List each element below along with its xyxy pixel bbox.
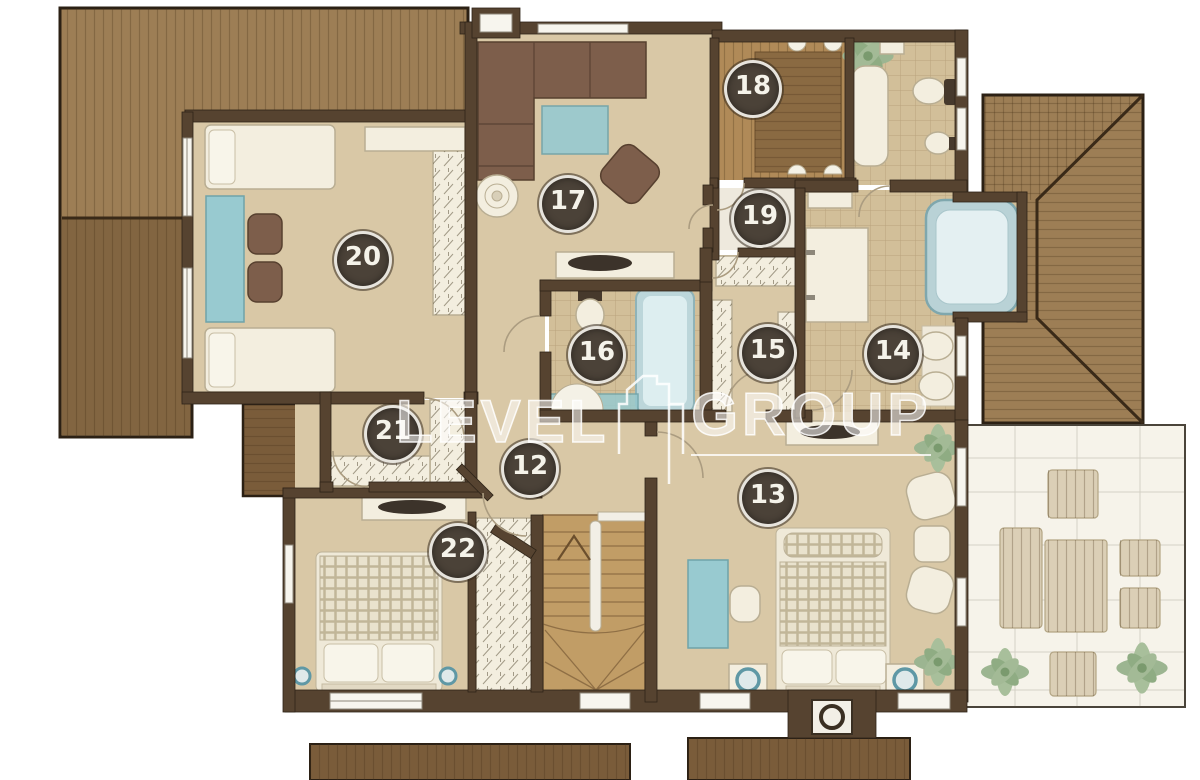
room-badge-18: 18 [724,60,782,118]
room-badge-12: 12 [501,440,559,498]
pillow [209,130,235,184]
chair [248,262,282,302]
tv [378,500,446,514]
bidet [925,132,951,154]
floor-plan-canvas: 12 13 14 15 16 17 18 19 20 21 22 LEVEL G… [0,0,1200,780]
staircase[interactable] [543,512,646,692]
shelf [880,42,904,54]
room-badge-15: 15 [739,324,797,382]
chair [248,214,282,254]
room-badge-16: 16 [568,326,626,384]
lamp-icon [894,669,916,691]
lamp-icon [294,668,310,684]
sink [919,372,953,400]
pillow [836,650,886,684]
side-table [914,526,950,562]
room-badge-19: 19 [731,190,789,248]
closet-shelf [365,127,465,151]
toilet [913,78,945,104]
deck-strips [310,738,910,780]
rug [542,106,608,154]
desk [688,560,728,648]
room-badge-20: 20 [334,231,392,289]
pillow [324,644,378,682]
lamp-icon [440,668,456,684]
tv [568,255,632,271]
desk [206,196,244,322]
terrace [963,425,1185,707]
chimney [788,690,876,738]
floor-plan-svg [0,0,1200,780]
sink [919,332,953,360]
pillow [382,644,434,682]
shelf [808,192,852,208]
room-badge-22: 22 [429,523,487,581]
tv [800,425,860,439]
pillow [782,650,832,684]
lounger [852,66,888,166]
room-badge-17: 17 [539,175,597,233]
room-badge-21: 21 [364,405,422,463]
stair-railing [590,521,601,631]
lamp-icon [737,669,759,691]
room-badge-13: 13 [739,469,797,527]
room-badge-14: 14 [864,325,922,383]
counter [806,228,868,322]
pillow [209,333,235,387]
chair [730,586,760,622]
